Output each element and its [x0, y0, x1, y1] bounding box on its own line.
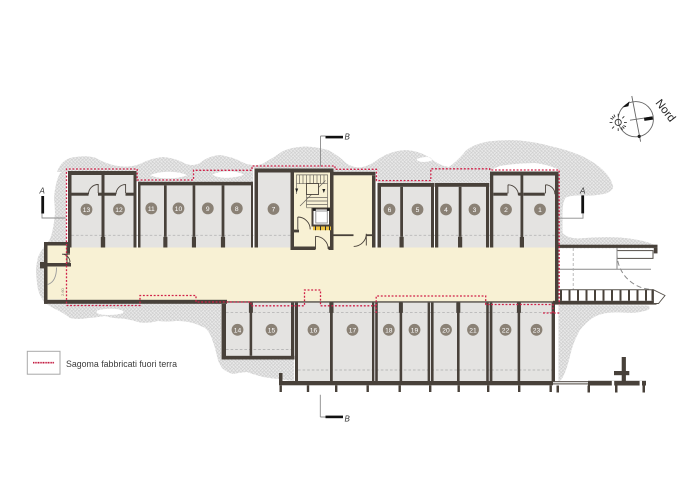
svg-text:2.60: 2.60 — [60, 287, 65, 296]
svg-text:11: 11 — [148, 206, 155, 213]
svg-text:A: A — [579, 187, 585, 196]
svg-text:7: 7 — [272, 207, 276, 214]
svg-text:B: B — [345, 415, 351, 424]
svg-text:14: 14 — [234, 327, 242, 334]
svg-text:23: 23 — [533, 327, 541, 334]
svg-text:Sagoma fabbricati fuori terra: Sagoma fabbricati fuori terra — [66, 359, 177, 369]
svg-text:8: 8 — [235, 206, 239, 213]
svg-text:16: 16 — [310, 327, 318, 334]
svg-text:5: 5 — [416, 207, 420, 214]
svg-text:4: 4 — [444, 207, 448, 214]
svg-text:15: 15 — [268, 327, 276, 334]
svg-text:18: 18 — [385, 327, 393, 334]
svg-text:A: A — [39, 187, 45, 196]
svg-text:21: 21 — [469, 327, 477, 334]
svg-text:9: 9 — [206, 206, 210, 213]
svg-text:2: 2 — [504, 207, 508, 214]
svg-text:13: 13 — [83, 207, 91, 214]
svg-text:20: 20 — [442, 327, 450, 334]
svg-text:17: 17 — [349, 327, 357, 334]
svg-text:12: 12 — [115, 207, 123, 214]
svg-text:B: B — [345, 133, 351, 142]
svg-text:19: 19 — [411, 327, 419, 334]
svg-text:10: 10 — [175, 206, 183, 213]
svg-text:22: 22 — [502, 327, 510, 334]
svg-text:6: 6 — [388, 207, 392, 214]
svg-text:1: 1 — [538, 207, 542, 214]
svg-text:3: 3 — [473, 207, 477, 214]
